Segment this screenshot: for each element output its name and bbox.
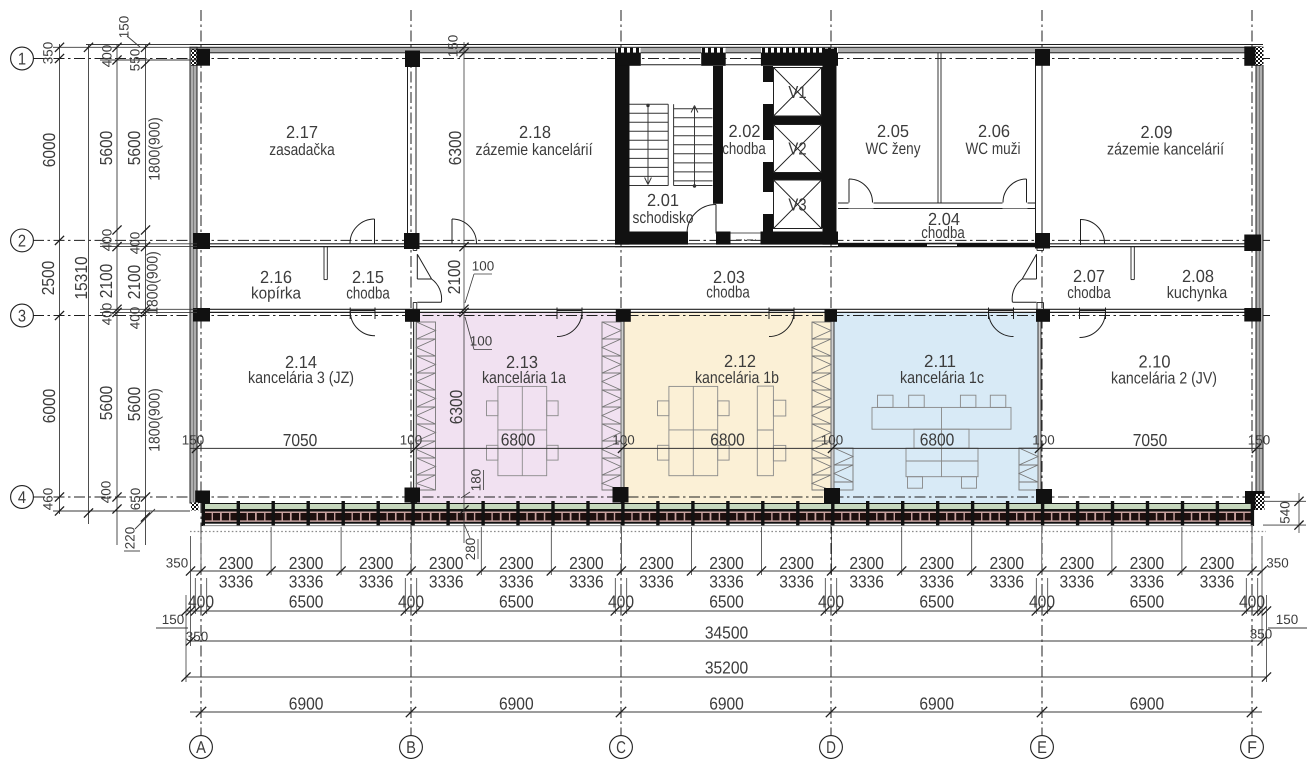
svg-text:1800(900): 1800(900) xyxy=(147,388,164,452)
svg-text:34500: 34500 xyxy=(705,623,748,643)
svg-text:chodba: chodba xyxy=(722,140,766,158)
svg-text:2300: 2300 xyxy=(219,553,254,573)
svg-text:150: 150 xyxy=(162,612,184,627)
svg-text:400: 400 xyxy=(818,592,844,612)
svg-text:3336: 3336 xyxy=(429,572,464,592)
svg-text:6300: 6300 xyxy=(445,131,465,166)
svg-text:2.06: 2.06 xyxy=(978,121,1010,141)
svg-text:1800(900): 1800(900) xyxy=(145,251,162,315)
svg-text:400: 400 xyxy=(398,592,424,612)
svg-text:150: 150 xyxy=(117,16,132,38)
svg-text:C: C xyxy=(616,738,626,757)
svg-text:6500: 6500 xyxy=(289,592,324,612)
svg-text:2100: 2100 xyxy=(124,265,144,300)
svg-text:6800: 6800 xyxy=(920,430,955,450)
svg-text:2.01: 2.01 xyxy=(647,190,679,210)
svg-text:2300: 2300 xyxy=(639,553,674,573)
svg-text:650: 650 xyxy=(128,488,143,510)
svg-text:2300: 2300 xyxy=(499,553,534,573)
svg-text:6800: 6800 xyxy=(501,430,536,450)
svg-text:2.10: 2.10 xyxy=(1139,352,1171,372)
svg-text:7050: 7050 xyxy=(283,430,318,450)
svg-text:2.08: 2.08 xyxy=(1182,266,1214,286)
svg-text:6900: 6900 xyxy=(499,694,534,714)
svg-text:2300: 2300 xyxy=(919,553,954,573)
svg-text:400: 400 xyxy=(100,229,115,251)
svg-text:400: 400 xyxy=(128,232,143,254)
svg-text:A: A xyxy=(196,738,206,757)
svg-text:4: 4 xyxy=(18,488,26,507)
svg-text:15310: 15310 xyxy=(71,256,91,299)
svg-text:E: E xyxy=(1037,738,1047,757)
svg-text:2300: 2300 xyxy=(779,553,814,573)
svg-text:chodba: chodba xyxy=(346,285,390,303)
svg-text:150: 150 xyxy=(446,35,461,57)
svg-text:V3: V3 xyxy=(788,194,806,214)
svg-text:2100: 2100 xyxy=(96,264,116,299)
svg-text:6300: 6300 xyxy=(446,390,466,425)
svg-text:2.05: 2.05 xyxy=(877,121,909,141)
svg-text:6500: 6500 xyxy=(919,592,954,612)
svg-text:kopírka: kopírka xyxy=(251,285,302,303)
svg-text:2.02: 2.02 xyxy=(729,121,761,141)
svg-text:kancelária 1c: kancelária 1c xyxy=(900,369,984,387)
svg-text:V1: V1 xyxy=(788,82,806,102)
svg-text:400: 400 xyxy=(99,481,114,503)
svg-text:6000: 6000 xyxy=(39,133,59,168)
svg-text:350: 350 xyxy=(166,556,188,571)
svg-text:3336: 3336 xyxy=(989,572,1024,592)
svg-text:1: 1 xyxy=(18,50,26,69)
svg-text:kuchynka: kuchynka xyxy=(1167,284,1228,302)
svg-text:V2: V2 xyxy=(788,139,806,159)
svg-text:F: F xyxy=(1247,738,1257,757)
svg-text:3336: 3336 xyxy=(709,572,744,592)
svg-text:2.17: 2.17 xyxy=(286,122,318,142)
svg-text:3336: 3336 xyxy=(919,572,954,592)
svg-text:6500: 6500 xyxy=(1130,592,1165,612)
svg-text:150: 150 xyxy=(182,433,204,448)
svg-text:3336: 3336 xyxy=(779,572,814,592)
svg-text:chodba: chodba xyxy=(706,284,750,302)
svg-text:400: 400 xyxy=(608,592,634,612)
svg-text:WC ženy: WC ženy xyxy=(866,140,922,158)
svg-text:2.09: 2.09 xyxy=(1141,122,1173,142)
svg-text:540: 540 xyxy=(1278,501,1293,523)
svg-text:2300: 2300 xyxy=(1060,553,1095,573)
svg-text:150: 150 xyxy=(1276,612,1298,627)
svg-text:3336: 3336 xyxy=(1130,572,1165,592)
svg-text:kancelária 2 (JV): kancelária 2 (JV) xyxy=(1111,370,1217,388)
svg-text:100: 100 xyxy=(821,433,843,448)
svg-text:350: 350 xyxy=(41,42,56,64)
svg-text:3336: 3336 xyxy=(359,572,394,592)
svg-text:100: 100 xyxy=(472,259,494,274)
svg-text:kancelária 3 (JZ): kancelária 3 (JZ) xyxy=(248,369,354,387)
svg-text:400: 400 xyxy=(188,592,214,612)
svg-text:kancelária 1a: kancelária 1a xyxy=(482,369,567,387)
svg-text:chodba: chodba xyxy=(921,224,965,242)
svg-text:2.18: 2.18 xyxy=(519,122,551,142)
svg-text:6500: 6500 xyxy=(499,592,534,612)
svg-text:400: 400 xyxy=(100,303,115,325)
svg-text:6900: 6900 xyxy=(289,694,324,714)
svg-text:6800: 6800 xyxy=(710,430,745,450)
svg-text:3: 3 xyxy=(18,307,26,326)
svg-text:zázemie kancelárií: zázemie kancelárií xyxy=(1107,141,1224,159)
svg-text:2300: 2300 xyxy=(569,553,604,573)
svg-text:3336: 3336 xyxy=(289,572,324,592)
svg-text:2500: 2500 xyxy=(38,261,58,296)
svg-text:5600: 5600 xyxy=(96,386,116,421)
svg-text:3336: 3336 xyxy=(1060,572,1095,592)
svg-text:WC muži: WC muži xyxy=(966,140,1021,158)
svg-text:2.11: 2.11 xyxy=(924,351,956,371)
svg-text:100: 100 xyxy=(400,433,422,448)
svg-text:180: 180 xyxy=(469,469,484,491)
svg-text:5600: 5600 xyxy=(124,131,144,166)
svg-text:2300: 2300 xyxy=(849,553,884,573)
svg-text:460: 460 xyxy=(41,488,56,510)
svg-text:35200: 35200 xyxy=(705,658,748,678)
svg-text:1800(900): 1800(900) xyxy=(147,117,164,181)
svg-text:280: 280 xyxy=(463,538,478,560)
svg-text:3336: 3336 xyxy=(219,572,254,592)
svg-text:6000: 6000 xyxy=(39,389,59,424)
svg-text:6900: 6900 xyxy=(919,694,954,714)
svg-text:100: 100 xyxy=(612,433,634,448)
svg-text:kancelária 1b: kancelária 1b xyxy=(695,369,779,387)
svg-text:2300: 2300 xyxy=(1130,553,1165,573)
svg-text:3336: 3336 xyxy=(849,572,884,592)
svg-text:350: 350 xyxy=(1250,627,1272,642)
svg-text:2: 2 xyxy=(18,231,26,250)
svg-text:2300: 2300 xyxy=(289,553,324,573)
svg-text:400: 400 xyxy=(128,307,143,329)
svg-text:550: 550 xyxy=(128,49,143,71)
svg-text:chodba: chodba xyxy=(1067,284,1111,302)
svg-text:6500: 6500 xyxy=(709,592,744,612)
svg-text:3336: 3336 xyxy=(1200,572,1235,592)
svg-text:400: 400 xyxy=(100,45,115,67)
svg-text:2300: 2300 xyxy=(989,553,1024,573)
svg-text:schodisko: schodisko xyxy=(633,209,694,227)
svg-text:zázemie kancelárií: zázemie kancelárií xyxy=(476,141,593,159)
svg-text:5600: 5600 xyxy=(124,387,144,422)
svg-text:220: 220 xyxy=(123,527,138,549)
svg-text:2.07: 2.07 xyxy=(1073,266,1105,286)
svg-text:2300: 2300 xyxy=(1200,553,1235,573)
svg-text:2100: 2100 xyxy=(444,260,464,295)
svg-text:B: B xyxy=(406,738,416,757)
svg-text:2300: 2300 xyxy=(429,553,464,573)
svg-text:3336: 3336 xyxy=(639,572,674,592)
svg-text:3336: 3336 xyxy=(569,572,604,592)
svg-text:6900: 6900 xyxy=(709,694,744,714)
svg-text:3336: 3336 xyxy=(499,572,534,592)
svg-text:400: 400 xyxy=(1029,592,1055,612)
svg-text:D: D xyxy=(826,738,836,757)
svg-text:2300: 2300 xyxy=(709,553,744,573)
svg-text:400: 400 xyxy=(1239,592,1265,612)
svg-text:150: 150 xyxy=(1248,433,1270,448)
svg-text:350: 350 xyxy=(1266,556,1288,571)
svg-text:2.12: 2.12 xyxy=(724,351,756,371)
svg-text:5600: 5600 xyxy=(96,131,116,166)
svg-text:7050: 7050 xyxy=(1133,430,1168,450)
svg-text:2300: 2300 xyxy=(359,553,394,573)
svg-text:6900: 6900 xyxy=(1130,694,1165,714)
svg-text:100: 100 xyxy=(1032,433,1054,448)
svg-text:zasadačka: zasadačka xyxy=(269,141,335,159)
